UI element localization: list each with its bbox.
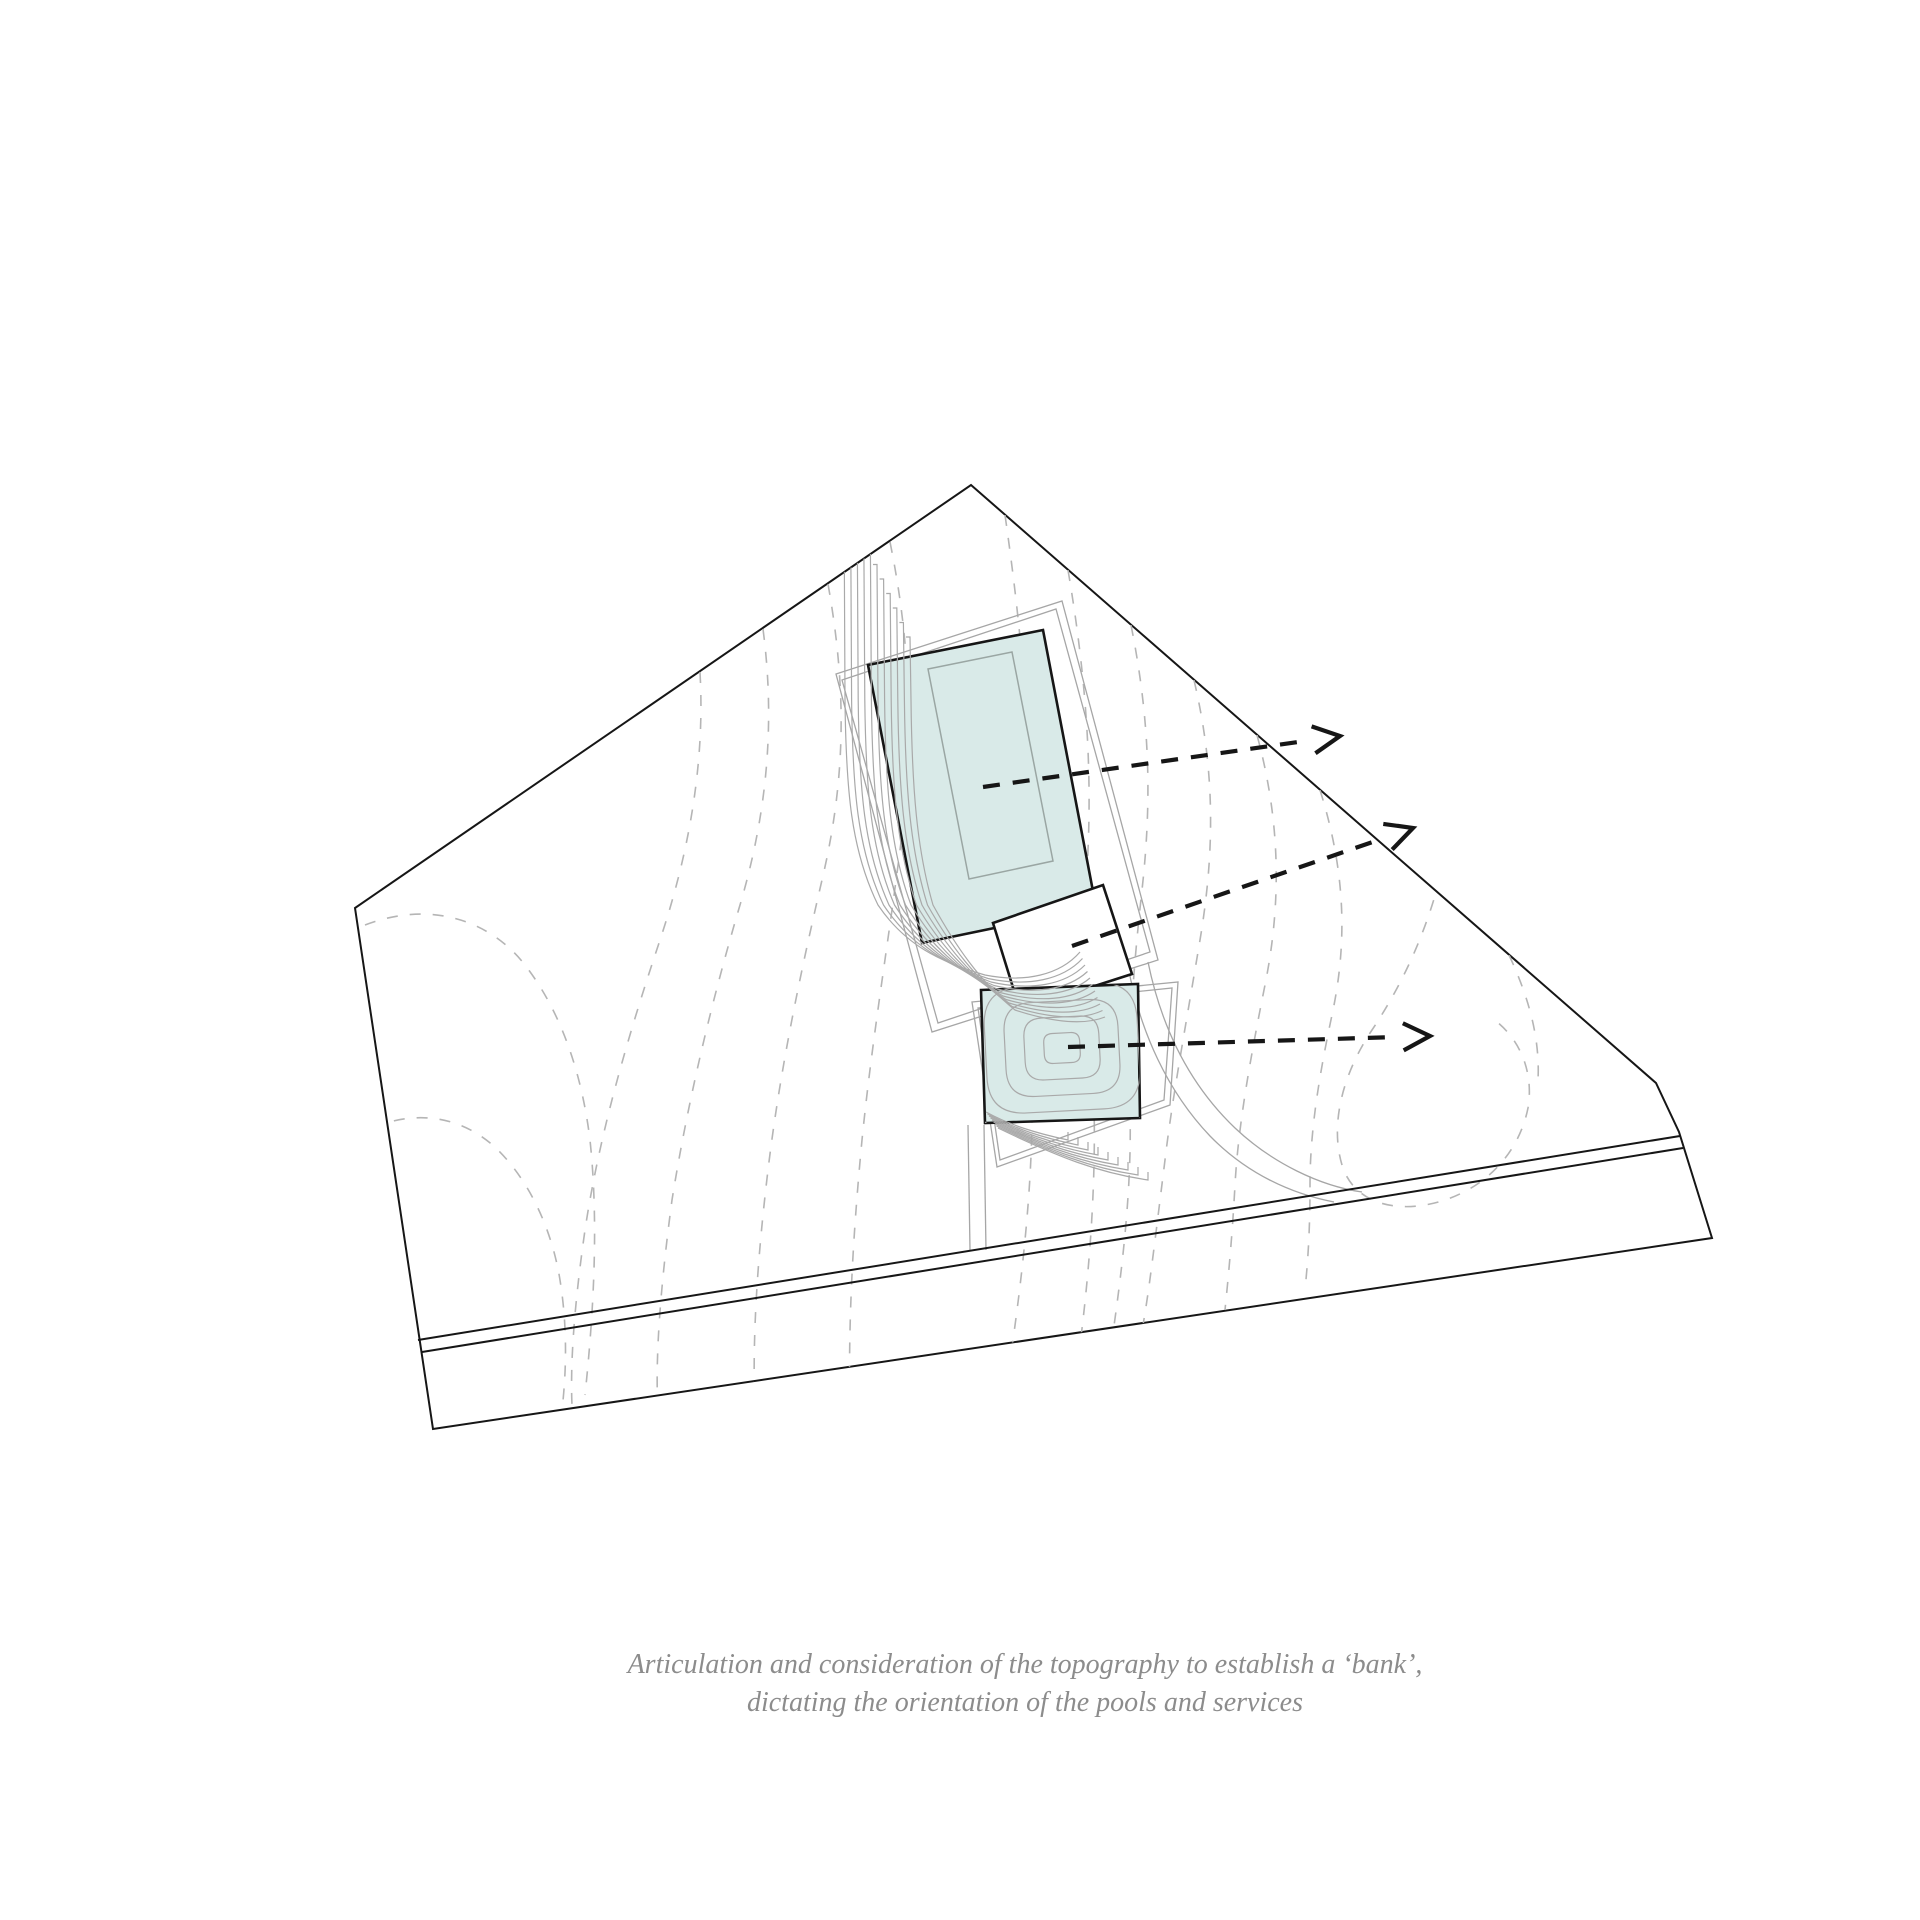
figure-caption-line-1: Articulation and consideration of the to… xyxy=(540,1646,1510,1684)
site-plan-figure: Articulation and consideration of the to… xyxy=(0,0,1920,1920)
figure-caption-line-2: dictating the orientation of the pools a… xyxy=(540,1684,1510,1722)
upper-pool-orientation-arrow-head xyxy=(1312,726,1340,753)
figure-caption: Articulation and consideration of the to… xyxy=(540,1646,1510,1722)
site-plan-svg xyxy=(0,0,1920,1920)
services-orientation-arrow-head xyxy=(1383,824,1413,850)
